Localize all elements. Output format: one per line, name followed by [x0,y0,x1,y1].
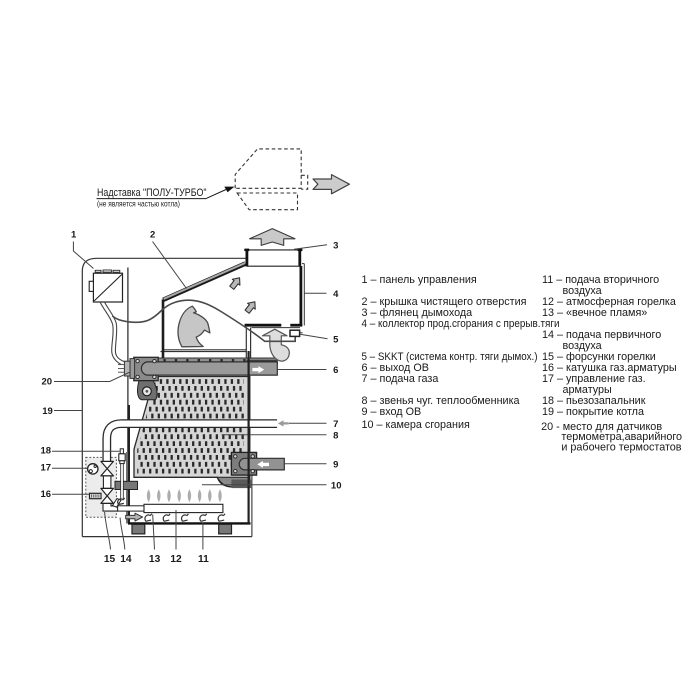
svg-text:3: 3 [333,241,338,252]
svg-text:19: 19 [42,406,53,417]
svg-text:8: 8 [333,431,338,442]
svg-text:1 – панель управления: 1 – панель управления [362,274,477,286]
svg-text:16: 16 [41,489,52,500]
svg-text:9: 9 [333,460,338,471]
svg-text:(не является частью котла): (не является частью котла) [97,200,180,209]
svg-text:19 – покрытие котла: 19 – покрытие котла [542,406,644,418]
svg-text:17: 17 [41,463,52,474]
svg-text:10 – камера сгорания: 10 – камера сгорания [362,419,471,431]
svg-text:6: 6 [333,365,338,376]
svg-text:и рабочего термостатов: и рабочего термостатов [561,442,681,454]
svg-text:13: 13 [149,554,161,565]
svg-text:9 – вход ОВ: 9 – вход ОВ [362,406,422,418]
svg-text:7 – подача газа: 7 – подача газа [362,373,439,385]
svg-text:1: 1 [71,230,77,241]
svg-text:12: 12 [170,554,182,565]
svg-text:5: 5 [333,335,339,346]
svg-text:13 – «вечное пламя»: 13 – «вечное пламя» [542,307,647,319]
svg-text:7: 7 [333,419,338,430]
svg-text:Надставка "ПОЛУ-ТУРБО": Надставка "ПОЛУ-ТУРБО" [97,187,207,199]
svg-text:4 – коллектор прод.сгорания с: 4 – коллектор прод.сгорания с прерыв.тяг… [362,318,560,330]
svg-text:2: 2 [150,230,155,241]
svg-text:4: 4 [333,289,339,300]
svg-text:15: 15 [104,554,116,565]
svg-text:14: 14 [120,554,132,565]
svg-text:20: 20 [42,376,53,387]
svg-text:10: 10 [331,480,342,491]
svg-text:11: 11 [198,554,209,565]
svg-text:18: 18 [41,446,52,457]
